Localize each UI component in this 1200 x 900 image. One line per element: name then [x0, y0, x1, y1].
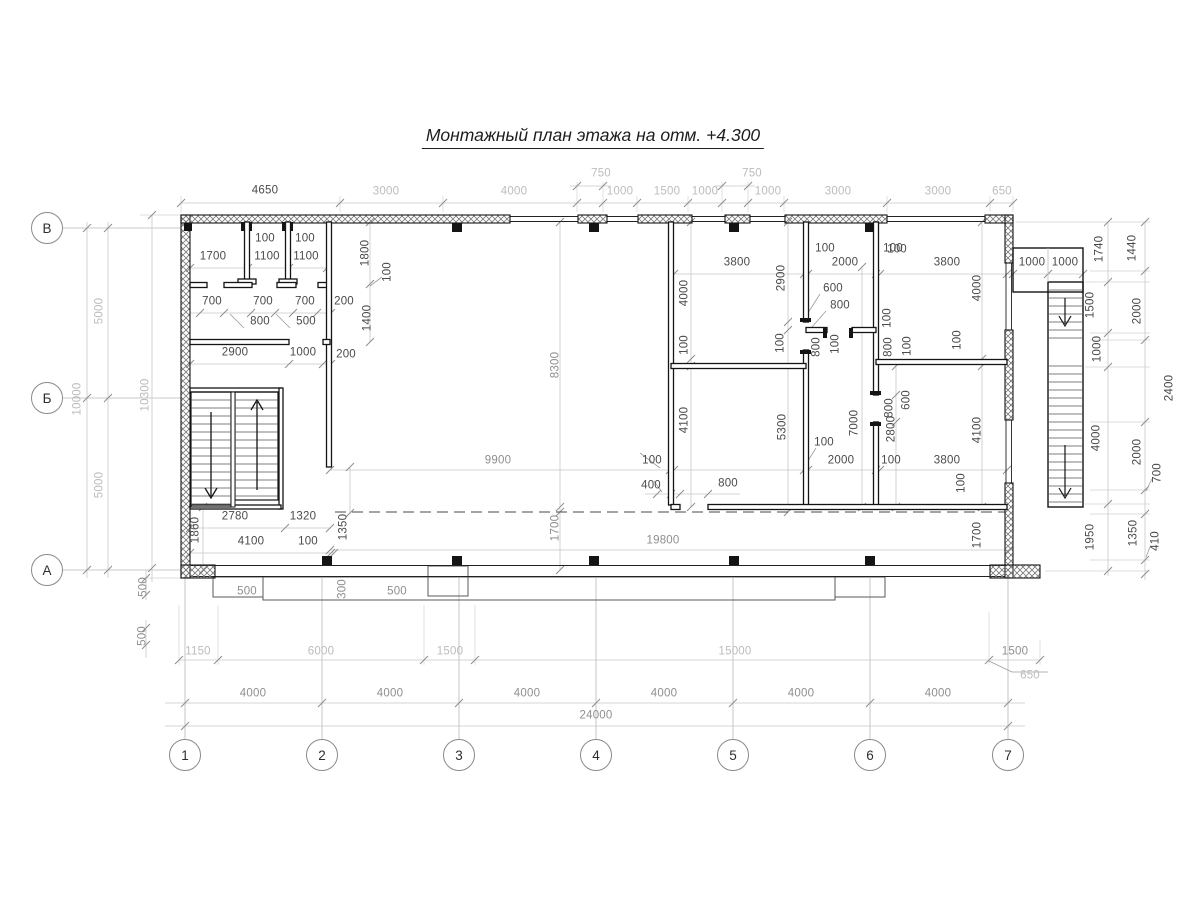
- dim-label: 100: [887, 244, 907, 256]
- dim-label: 3800: [934, 257, 960, 269]
- dim-label: 100: [814, 437, 834, 449]
- dim-label: 500: [137, 626, 149, 646]
- dim-label: 750: [591, 168, 611, 180]
- dim-label: 5000: [94, 472, 106, 498]
- dim-label: 200: [336, 349, 356, 361]
- dim-label: 650: [992, 186, 1012, 198]
- dim-label: 4000: [377, 688, 403, 700]
- dim-label: 800: [718, 478, 738, 490]
- dim-label: 6000: [308, 646, 334, 658]
- dim-label: 1500: [1085, 292, 1097, 318]
- floor-plan-sheet: Монтажный план этажа на отм. +4.300 4650…: [0, 0, 1200, 900]
- axis-bubble-7: 7: [992, 739, 1024, 771]
- dim-label: 7000: [849, 410, 861, 436]
- dim-label: 3800: [934, 455, 960, 467]
- dim-label: 500: [296, 316, 316, 328]
- dim-label: 2900: [776, 265, 788, 291]
- dim-label: 100: [382, 262, 394, 282]
- dim-label: 3800: [724, 257, 750, 269]
- dim-label: 500: [387, 586, 407, 598]
- dim-label: 200: [334, 296, 354, 308]
- dim-label: 700: [1152, 463, 1164, 483]
- dim-label: 4100: [972, 417, 984, 443]
- dim-label: 1350: [1128, 520, 1140, 546]
- dim-label: 100: [956, 473, 968, 493]
- dim-label: 3000: [925, 186, 951, 198]
- axis-bubble-А: А: [31, 554, 63, 586]
- dim-label: 100: [298, 536, 318, 548]
- dim-label: 800: [811, 337, 823, 357]
- dim-label: 1950: [1085, 524, 1097, 550]
- dim-label: 4000: [501, 186, 527, 198]
- dim-label: 400: [641, 480, 661, 492]
- dim-label: 1700: [550, 515, 562, 541]
- dim-label: 100: [255, 233, 275, 245]
- dim-label: 4000: [788, 688, 814, 700]
- dim-label: 600: [901, 390, 913, 410]
- dim-label: 100: [882, 308, 894, 328]
- dim-label: 2000: [1132, 439, 1144, 465]
- dim-label: 1350: [338, 514, 350, 540]
- axis-bubble-Б: Б: [31, 382, 63, 414]
- dim-label: 5300: [777, 414, 789, 440]
- dim-label: 1500: [1002, 646, 1028, 658]
- dim-label: 1440: [1127, 235, 1139, 261]
- dim-label: 5000: [94, 298, 106, 324]
- dim-label: 100: [295, 233, 315, 245]
- dim-label: 10300: [140, 379, 152, 412]
- dim-label: 15000: [719, 646, 752, 658]
- dim-label: 100: [881, 455, 901, 467]
- dim-label: 1700: [972, 522, 984, 548]
- dim-label: 500: [237, 586, 257, 598]
- dim-label: 1000: [1052, 257, 1078, 269]
- dim-label: 700: [253, 296, 273, 308]
- dim-label: 19800: [647, 535, 680, 547]
- labels-layer: 4650300040007501000150010007501000300030…: [0, 0, 1200, 900]
- dim-label: 800: [883, 337, 895, 357]
- dim-label: 4000: [679, 280, 691, 306]
- dim-label: 1500: [437, 646, 463, 658]
- dim-label: 1700: [200, 251, 226, 263]
- dim-label: 2400: [1164, 375, 1176, 401]
- dim-label: 8300: [550, 352, 562, 378]
- dim-label: 1320: [290, 511, 316, 523]
- dim-label: 4650: [252, 185, 278, 197]
- dim-label: 410: [1150, 531, 1162, 551]
- dim-label: 100: [952, 330, 964, 350]
- dim-label: 800: [250, 316, 270, 328]
- dim-label: 1000: [1019, 257, 1045, 269]
- dim-label: 4000: [240, 688, 266, 700]
- dim-label: 2000: [1132, 298, 1144, 324]
- dim-label: 600: [823, 283, 843, 295]
- dim-label: 1000: [1092, 336, 1104, 362]
- dim-label: 2000: [828, 455, 854, 467]
- dim-label: 100: [679, 335, 691, 355]
- dim-label: 2780: [222, 511, 248, 523]
- dim-label: 4000: [1091, 425, 1103, 451]
- dim-label: 1100: [254, 251, 280, 263]
- dim-label: 100: [830, 334, 842, 354]
- dim-label: 1400: [362, 305, 374, 331]
- dim-label: 4000: [651, 688, 677, 700]
- dim-label: 4000: [514, 688, 540, 700]
- dim-label: 1860: [190, 517, 202, 543]
- dim-label: 1740: [1094, 236, 1106, 262]
- dim-label: 100: [775, 333, 787, 353]
- axis-bubble-5: 5: [717, 739, 749, 771]
- dim-label: 1800: [360, 240, 372, 266]
- dim-label: 3000: [825, 186, 851, 198]
- dim-label: 1000: [692, 186, 718, 198]
- dim-label: 4100: [679, 407, 691, 433]
- axis-bubble-3: 3: [443, 739, 475, 771]
- dim-label: 1100: [293, 251, 319, 263]
- axis-bubble-4: 4: [580, 739, 612, 771]
- dim-label: 9900: [485, 455, 511, 467]
- dim-label: 2800: [886, 416, 898, 442]
- dim-label: 500: [138, 577, 150, 597]
- axis-bubble-6: 6: [854, 739, 886, 771]
- dim-label: 24000: [580, 710, 613, 722]
- dim-label: 650: [1020, 670, 1040, 682]
- dim-label: 300: [337, 579, 349, 599]
- dim-label: 4100: [238, 536, 264, 548]
- dim-label: 1000: [755, 186, 781, 198]
- dim-label: 800: [830, 300, 850, 312]
- dim-label: 4000: [925, 688, 951, 700]
- dim-label: 100: [902, 336, 914, 356]
- axis-bubble-В: В: [31, 212, 63, 244]
- dim-label: 10000: [72, 383, 84, 416]
- dim-label: 1150: [185, 646, 211, 658]
- dim-label: 2900: [222, 347, 248, 359]
- dim-label: 700: [295, 296, 315, 308]
- dim-label: 4000: [972, 275, 984, 301]
- axis-bubble-2: 2: [306, 739, 338, 771]
- axis-bubble-1: 1: [169, 739, 201, 771]
- dim-label: 3000: [373, 186, 399, 198]
- dim-label: 1500: [654, 186, 680, 198]
- dim-label: 100: [642, 455, 662, 467]
- dim-label: 100: [815, 243, 835, 255]
- dim-label: 700: [202, 296, 222, 308]
- dim-label: 2000: [832, 257, 858, 269]
- dim-label: 750: [742, 168, 762, 180]
- dim-label: 1000: [290, 347, 316, 359]
- dim-label: 1000: [607, 186, 633, 198]
